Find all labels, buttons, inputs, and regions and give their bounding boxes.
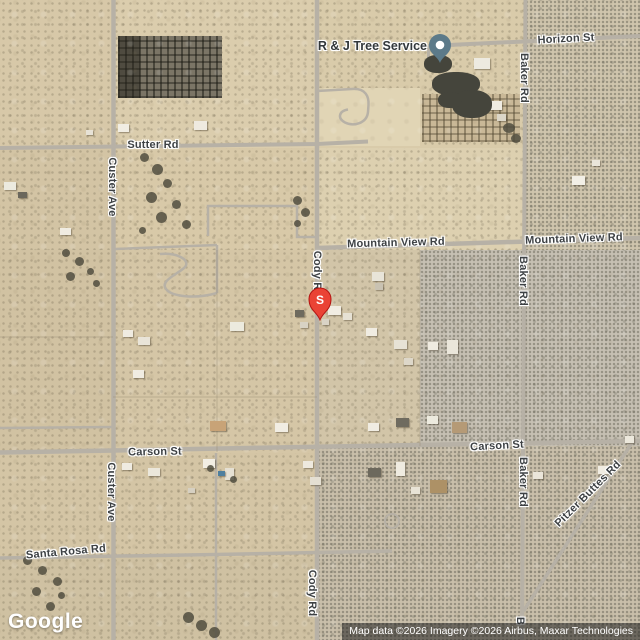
building <box>123 330 133 337</box>
road-horizon-st <box>428 36 640 46</box>
building <box>4 182 16 190</box>
building <box>343 313 352 320</box>
building <box>533 472 543 479</box>
road-label-sutter-rd: Sutter Rd <box>127 139 178 151</box>
building <box>368 423 379 431</box>
building <box>428 342 438 350</box>
building <box>404 358 413 365</box>
building <box>133 370 144 378</box>
road-label-custer-ave-bottom: Custer Ave <box>105 462 117 521</box>
business-label[interactable]: R & J Tree Service <box>318 39 427 53</box>
building <box>572 176 585 185</box>
building <box>86 130 93 135</box>
building <box>60 228 71 235</box>
road-sutter-rd <box>0 142 368 149</box>
red-pin-letter: S <box>316 293 324 307</box>
road-label-custer-ave-top: Custer Ave <box>106 157 118 216</box>
road-label-mountain-view-rd-left: Mountain View Rd <box>347 236 445 251</box>
building <box>230 322 244 331</box>
driveway-circle <box>385 514 399 528</box>
building <box>210 421 226 431</box>
map-attribution: Map data ©2026 Imagery ©2026 Airbus, Max… <box>342 623 640 640</box>
satellite-map-canvas[interactable]: Horizon St Sutter Rd Custer Ave Custer A… <box>0 0 640 640</box>
road-carson-stub <box>0 427 113 428</box>
poi-pin-marker[interactable] <box>427 33 453 65</box>
red-pin-marker[interactable]: S <box>305 284 335 322</box>
building <box>188 488 195 493</box>
building <box>275 423 288 432</box>
road-carson-st <box>0 441 640 453</box>
building <box>295 310 304 317</box>
building <box>625 436 634 443</box>
road-label-cody-rd-lower: Cody Rd <box>306 570 318 617</box>
tree-grove <box>438 92 462 108</box>
building <box>18 192 27 198</box>
driveway-cody-loop <box>317 89 369 124</box>
building <box>138 337 150 345</box>
building <box>372 272 384 281</box>
building <box>411 487 420 494</box>
building <box>300 322 308 328</box>
road-label-baker-rd-top: Baker Rd <box>518 53 530 103</box>
building <box>592 160 600 166</box>
building <box>396 418 409 427</box>
building <box>427 416 438 424</box>
building <box>394 340 407 349</box>
road-label-baker-rd-lower: Baker Rd <box>517 457 529 507</box>
google-logo[interactable]: Google <box>8 610 83 634</box>
building <box>118 124 129 132</box>
building <box>303 461 313 468</box>
driveway-lasso <box>115 245 217 296</box>
building <box>447 340 458 354</box>
building <box>368 468 381 477</box>
road-label-baker-rd-mid: Baker Rd <box>517 256 529 306</box>
swimming-pool <box>218 471 225 476</box>
building <box>396 462 405 476</box>
building <box>452 422 467 433</box>
building <box>194 121 207 130</box>
building <box>122 463 132 470</box>
building <box>497 114 506 121</box>
building <box>430 480 447 493</box>
building <box>375 283 383 290</box>
building <box>148 468 160 476</box>
building <box>474 58 490 69</box>
building <box>310 477 321 485</box>
building <box>366 328 377 336</box>
road-label-carson-st-left: Carson St <box>128 446 182 459</box>
